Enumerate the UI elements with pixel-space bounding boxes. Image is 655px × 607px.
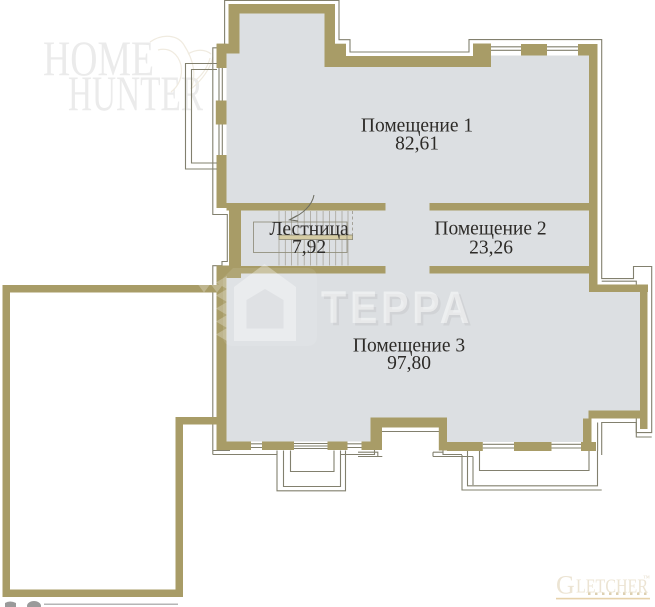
svg-text:Помещение 2: Помещение 2 [434, 219, 546, 240]
svg-text:97,80: 97,80 [387, 353, 431, 374]
svg-text:82,61: 82,61 [395, 134, 439, 155]
svg-text:HUNTER: HUNTER [68, 65, 203, 121]
svg-text:™: ™ [643, 574, 650, 582]
svg-text:23,26: 23,26 [469, 238, 513, 259]
svg-text:G: G [556, 571, 575, 600]
svg-text:ТЕРРА: ТЕРРА [321, 282, 473, 333]
svg-text:7,92: 7,92 [292, 237, 326, 258]
